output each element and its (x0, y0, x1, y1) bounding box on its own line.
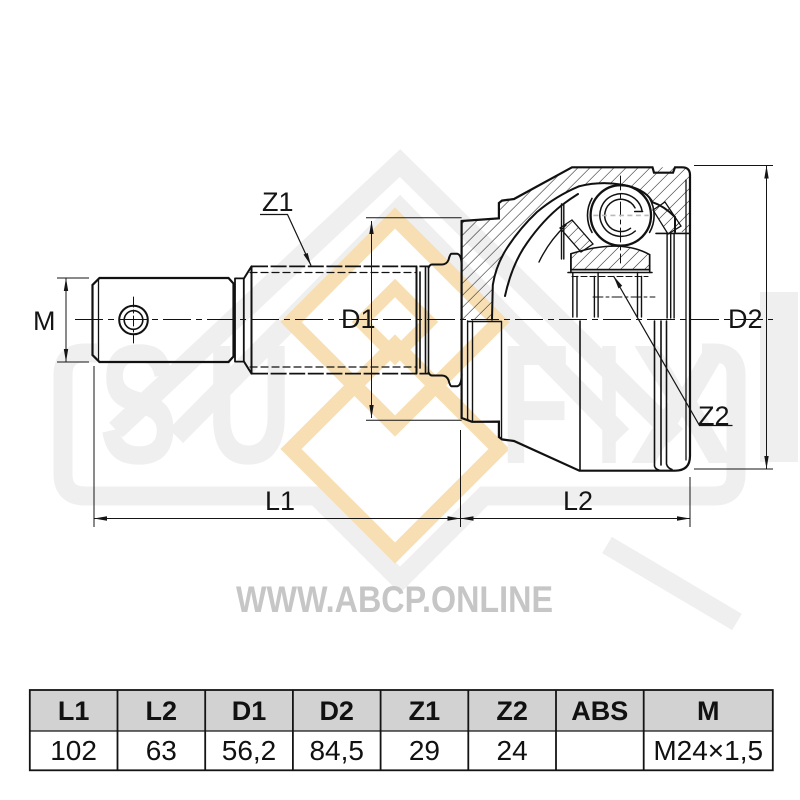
svg-text:D2: D2 (319, 696, 354, 726)
svg-text:Z2: Z2 (496, 696, 528, 726)
svg-text:D2: D2 (728, 304, 763, 334)
svg-text:29: 29 (409, 735, 440, 766)
svg-text:L2: L2 (146, 696, 178, 726)
svg-text:Z2: Z2 (698, 401, 730, 431)
svg-text:F: F (500, 310, 570, 500)
svg-text:56,2: 56,2 (222, 735, 277, 766)
svg-text:D1: D1 (232, 696, 267, 726)
svg-text:L2: L2 (563, 486, 593, 516)
svg-text:ABS: ABS (571, 696, 628, 726)
svg-text:102: 102 (50, 735, 97, 766)
svg-text:M: M (697, 696, 720, 726)
svg-text:24: 24 (497, 735, 528, 766)
svg-text:Z1: Z1 (409, 696, 441, 726)
svg-text:D1: D1 (341, 304, 376, 334)
svg-text:WWW.ABCP.ONLINE: WWW.ABCP.ONLINE (236, 579, 553, 620)
svg-text:Z1: Z1 (262, 187, 294, 217)
svg-text:U: U (206, 310, 292, 500)
svg-text:M: M (33, 306, 56, 336)
svg-text:M24×1,5: M24×1,5 (653, 735, 763, 766)
svg-text:S: S (99, 310, 178, 500)
svg-text:L1: L1 (265, 486, 295, 516)
svg-text:84,5: 84,5 (309, 735, 364, 766)
svg-text:L1: L1 (58, 696, 90, 726)
svg-text:63: 63 (146, 735, 177, 766)
